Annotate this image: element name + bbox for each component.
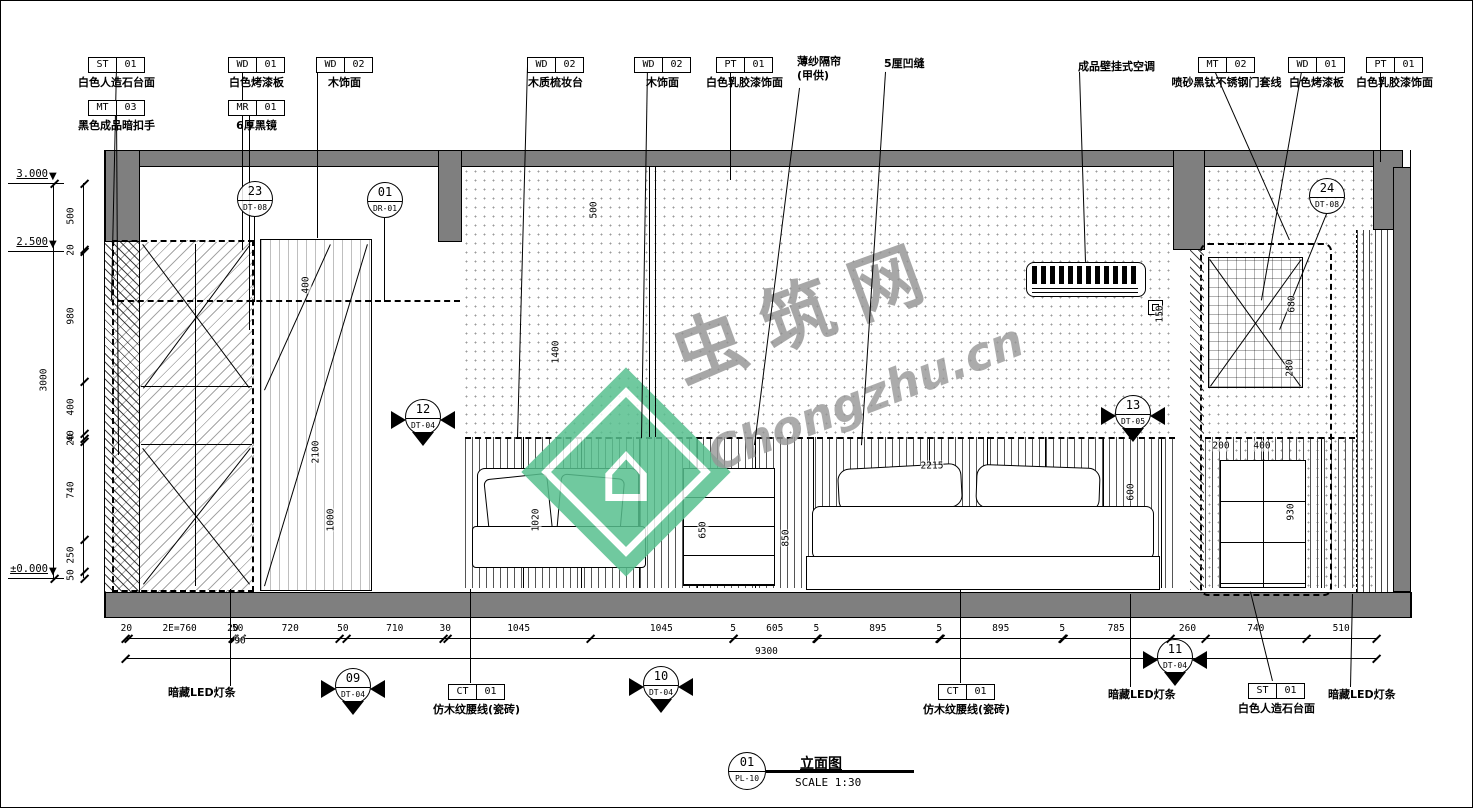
drawing-title: 立面图 — [800, 753, 842, 773]
callout-arrow-left — [629, 678, 644, 696]
drawing-canvas: ⌂ 虫筑网 Chongzhu.cn 01 PL-10 立面图 SCALE 1:3… — [0, 0, 1473, 808]
level-triangle-icon: ▼ — [49, 172, 57, 182]
detail-callout: 10DT-04 — [643, 666, 679, 702]
material-code: MT — [88, 100, 117, 116]
leader-line — [470, 589, 471, 683]
annotation-text: 5厘凹缝 — [884, 57, 925, 71]
callout-arrow-right — [1192, 651, 1207, 669]
annotation-text: 暗藏LED灯条 — [168, 686, 236, 700]
dim-value: 895 — [869, 623, 886, 634]
callout-number: 09 — [336, 669, 370, 688]
dim-value: 5 — [814, 623, 820, 634]
annotation-text: 暗藏LED灯条 — [1328, 688, 1396, 702]
leader-line — [317, 66, 318, 238]
material-number: 01 — [966, 684, 995, 700]
dim-value: 50 — [337, 623, 348, 634]
dim-value: 740 — [66, 481, 77, 498]
callout-arrow-left — [1143, 651, 1158, 669]
material-number: 01 — [256, 100, 285, 116]
material-number: 01 — [1276, 683, 1305, 699]
material-label: 喷砂黑钛不锈钢门套线 — [1172, 74, 1282, 90]
ac-bottom-lip — [1032, 288, 1138, 293]
material-tag: WD02木饰面 — [316, 57, 373, 73]
material-number: 02 — [1226, 57, 1255, 73]
bed-base — [806, 556, 1160, 590]
callout-number: 23 — [238, 182, 272, 201]
dim-value: 20 — [66, 244, 77, 255]
pier-left — [105, 150, 140, 242]
detail-callout: 23DT-08 — [237, 181, 273, 217]
callout-number: 24 — [1310, 179, 1344, 198]
material-code: PT — [1366, 57, 1395, 73]
callout-code: DT-04 — [336, 688, 370, 702]
material-label: 白色人造石台面 — [1238, 700, 1315, 716]
material-tag: MT02喷砂黑钛不锈钢门套线 — [1198, 57, 1255, 73]
callout-arrow-right — [370, 680, 385, 698]
callout-arrow-right — [678, 678, 693, 696]
dim-tick — [1372, 654, 1381, 663]
material-code: WD — [228, 57, 257, 73]
dim-value: 895 — [992, 623, 1009, 634]
dim-value: 50 — [66, 569, 77, 580]
inner-dim-value: 650 — [698, 521, 709, 538]
dim-tick — [80, 437, 89, 446]
callout-code: DT-04 — [644, 686, 678, 700]
material-tag: WD02木质梳妆台 — [527, 57, 584, 73]
inner-dim-value: 150 — [1155, 305, 1166, 322]
dim-value: 510 — [1333, 623, 1350, 634]
material-tag-box: WD01 — [1288, 57, 1345, 73]
detail-callout: 12DT-04 — [405, 399, 441, 435]
callout-code: DT-05 — [1116, 415, 1150, 429]
ac-slats — [1032, 266, 1138, 284]
pier-right — [1173, 150, 1205, 250]
dim-chain-line — [125, 638, 1376, 639]
title-sheet-code: PL-10 — [729, 772, 765, 786]
material-number: 02 — [662, 57, 691, 73]
dim-value: 1045 — [650, 623, 673, 634]
dim-value: 5 — [1059, 623, 1065, 634]
inner-dim-value: 400 — [1253, 441, 1270, 452]
material-number: 01 — [1316, 57, 1345, 73]
bed-pillow-right — [975, 464, 1100, 512]
dim-tick — [80, 377, 89, 386]
callout-number: 10 — [644, 667, 678, 686]
dim-value: 710 — [386, 623, 403, 634]
callout-code: DT-08 — [238, 201, 272, 215]
dim-value: 20 — [66, 434, 77, 445]
inner-dim-value: 850 — [781, 529, 792, 546]
callout-code: DT-04 — [1158, 659, 1192, 673]
dim-total-value: 9300 — [752, 646, 781, 657]
callout-arrow-left — [391, 411, 406, 429]
material-code: WD — [634, 57, 663, 73]
callout-arrow-down — [1164, 672, 1186, 686]
material-code: MT — [1198, 57, 1227, 73]
leader-line — [1130, 594, 1131, 687]
material-tag: ST01白色人造石台面 — [88, 57, 145, 73]
detail-callout: 24DT-08 — [1309, 178, 1345, 214]
dim-tick — [1372, 634, 1381, 643]
callout-number: 01 — [368, 183, 402, 202]
inner-dim-value: 2215 — [921, 461, 944, 472]
dim-value: 250 — [66, 546, 77, 563]
inner-dim-value: 1020 — [531, 509, 542, 532]
leader-line — [242, 66, 243, 250]
callout-number: 12 — [406, 400, 440, 419]
curtain — [1356, 230, 1393, 592]
dim-value: 500 — [66, 207, 77, 224]
callout-arrow-right — [1150, 407, 1165, 425]
material-code: WD — [527, 57, 556, 73]
material-tag: WD01白色烤漆板 — [1288, 57, 1345, 73]
dim-value: 20 — [121, 623, 132, 634]
material-code: CT — [938, 684, 967, 700]
inner-dim-value: 1000 — [326, 509, 337, 532]
material-code: WD — [1288, 57, 1317, 73]
leader-line — [384, 218, 385, 302]
leader-line — [1410, 150, 1411, 618]
inner-dim-value: 930 — [1286, 503, 1297, 520]
inner-dim-value: 1400 — [551, 341, 562, 364]
callout-code: DT-08 — [1310, 198, 1344, 212]
leader-line — [249, 109, 250, 330]
drawing-scale: SCALE 1:30 — [795, 776, 861, 789]
callout-arrow-down — [342, 701, 364, 715]
material-tag-box: WD01 — [228, 57, 285, 73]
material-tag: WD01白色烤漆板 — [228, 57, 285, 73]
material-tag: MR016厚黑镜 — [228, 100, 285, 116]
material-label: 白色烤漆板 — [229, 74, 284, 90]
leader-line — [104, 150, 105, 618]
material-code: WD — [316, 57, 345, 73]
material-code: ST — [88, 57, 117, 73]
wardrobe — [112, 240, 254, 592]
level-value: 3.000 — [4, 168, 48, 180]
callout-arrow-down — [1122, 428, 1144, 442]
material-number: 01 — [1394, 57, 1423, 73]
dim-value: 30 — [440, 623, 451, 634]
callout-code: DR-01 — [368, 202, 402, 216]
material-number: 02 — [555, 57, 584, 73]
dim-value: 50 — [232, 623, 243, 634]
leader-line — [141, 444, 252, 445]
material-code: CT — [448, 684, 477, 700]
material-tag-box: ST01 — [88, 57, 145, 73]
dim-tick — [80, 535, 89, 544]
annotation-text: 成品壁挂式空调 — [1078, 60, 1155, 74]
level-line — [8, 183, 64, 184]
level-value: 2.500 — [4, 236, 48, 248]
level-triangle-icon: ▼ — [49, 567, 57, 577]
leader-line — [655, 167, 656, 437]
dim-value: 5 — [730, 623, 736, 634]
material-number: 03 — [116, 100, 145, 116]
dim-value: 785 — [1108, 623, 1125, 634]
inner-dim-value: 400 — [301, 276, 312, 293]
material-label: 木饰面 — [328, 74, 361, 90]
inner-dim-value: 200 — [1212, 441, 1229, 452]
dim-value: 5 — [936, 623, 942, 634]
material-label: 仿木纹腰线(瓷砖) — [923, 701, 1010, 717]
dim-value: 740 — [1247, 623, 1264, 634]
watermark-house-icon: ⌂ — [599, 430, 652, 514]
level-line — [8, 251, 64, 252]
material-tag-box: PT01 — [716, 57, 773, 73]
material-tag: ST01白色人造石台面 — [1248, 683, 1305, 699]
material-tag: PT01白色乳胶漆饰面 — [716, 57, 773, 73]
callout-arrow-left — [321, 680, 336, 698]
dim-value: 260 — [1179, 623, 1196, 634]
dim-value: 1045 — [507, 623, 530, 634]
material-code: ST — [1248, 683, 1277, 699]
material-tag-box: WD02 — [316, 57, 373, 73]
material-tag-box: CT01 — [938, 684, 995, 700]
dim-value: 400 — [66, 398, 77, 415]
wall-hatch-right — [1190, 250, 1204, 590]
material-tag-box: PT01 — [1366, 57, 1423, 73]
inner-dim-value: 680 — [1287, 295, 1298, 312]
callout-number: 13 — [1116, 396, 1150, 415]
material-label: 木饰面 — [646, 74, 679, 90]
material-tag-box: MT02 — [1198, 57, 1255, 73]
material-label: 白色烤漆板 — [1289, 74, 1344, 90]
level-value: ±0.000 — [4, 563, 48, 575]
leader-line — [195, 244, 196, 586]
material-tag: CT01仿木纹腰线(瓷砖) — [938, 684, 995, 700]
annotation-text: 暗藏LED灯条 — [1108, 688, 1176, 702]
title-sheet-number: 01 — [729, 753, 765, 772]
material-number: 01 — [256, 57, 285, 73]
material-tag-box: WD02 — [634, 57, 691, 73]
material-label: 白色乳胶漆饰面 — [706, 74, 783, 90]
dim-total-line — [125, 658, 1376, 659]
detail-callout: 01DR-01 — [367, 182, 403, 218]
callout-arrow-down — [412, 432, 434, 446]
dim-value: 720 — [282, 623, 299, 634]
material-tag-box: WD02 — [527, 57, 584, 73]
material-tag: CT01仿木纹腰线(瓷砖) — [448, 684, 505, 700]
material-tag: MT03黑色成品暗扣手 — [88, 100, 145, 116]
leader-line — [649, 167, 650, 437]
material-label: 黑色成品暗扣手 — [78, 117, 155, 133]
detail-callout: 09DT-04 — [335, 668, 371, 704]
callout-arrow-down — [650, 699, 672, 713]
leader-line — [960, 589, 961, 683]
material-label: 木质梳妆台 — [528, 74, 583, 90]
annotation-text: 薄纱隔帘 (甲供) — [797, 55, 841, 84]
bed-mattress — [812, 506, 1154, 560]
material-number: 01 — [476, 684, 505, 700]
inner-dim-value: 90 — [234, 636, 245, 647]
material-tag-box: ST01 — [1248, 683, 1305, 699]
leader-line — [254, 217, 255, 302]
level-triangle-icon: ▼ — [49, 240, 57, 250]
dim-tick — [80, 179, 89, 188]
inner-dim-value: 500 — [589, 201, 600, 218]
material-number: 01 — [744, 57, 773, 73]
detail-callout: 11DT-04 — [1157, 639, 1193, 675]
wall-strip-right — [1393, 167, 1411, 592]
material-code: PT — [716, 57, 745, 73]
callout-arrow-left — [1101, 407, 1116, 425]
inner-dim-value: 600 — [1126, 483, 1137, 500]
material-number: 01 — [116, 57, 145, 73]
material-tag: WD02木饰面 — [634, 57, 691, 73]
callout-arrow-right — [440, 411, 455, 429]
material-code: MR — [228, 100, 257, 116]
callout-code: DT-04 — [406, 419, 440, 433]
dim-value: 980 — [66, 307, 77, 324]
material-label: 白色乳胶漆饰面 — [1356, 74, 1433, 90]
material-tag-box: MT03 — [88, 100, 145, 116]
leader-line — [141, 386, 252, 387]
dim-value: 2E=760 — [162, 623, 196, 634]
top-slab — [105, 150, 1400, 167]
inner-dim-value: 2100 — [311, 441, 322, 464]
callout-number: 11 — [1158, 640, 1192, 659]
dim-value: 605 — [766, 623, 783, 634]
dim-total-value: 3000 — [39, 367, 50, 394]
inner-dim-value: 280 — [1285, 359, 1296, 376]
material-tag: PT01白色乳胶漆饰面 — [1366, 57, 1423, 73]
material-label: 白色人造石台面 — [78, 74, 155, 90]
title-callout: 01 PL-10 — [728, 752, 766, 790]
material-tag-box: MR01 — [228, 100, 285, 116]
detail-callout: 13DT-05 — [1115, 395, 1151, 431]
material-label: 6厚黑镜 — [236, 117, 277, 133]
material-label: 仿木纹腰线(瓷砖) — [433, 701, 520, 717]
dim-tick — [80, 247, 89, 256]
material-number: 02 — [344, 57, 373, 73]
level-line — [8, 578, 64, 579]
material-tag-box: CT01 — [448, 684, 505, 700]
pier-mid — [438, 150, 462, 242]
